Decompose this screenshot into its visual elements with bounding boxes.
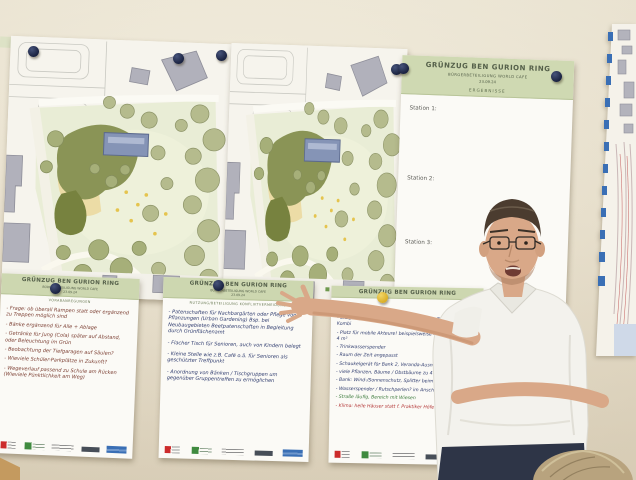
green-ls-icon — [191, 447, 211, 455]
pin-icon — [216, 50, 227, 61]
site-plan-variant-1 — [1, 36, 233, 302]
poster-section-label: ERGEBNISSE — [403, 85, 571, 96]
poster-header: GRÜNZUG BEN GURION RING BÜRGERBETEILIGUN… — [401, 55, 574, 100]
logo-strip — [0, 440, 126, 454]
gray-wordmark-icon — [222, 448, 244, 456]
pin-icon — [398, 63, 409, 74]
gray-wordmark-icon — [51, 443, 73, 451]
station-label-2: Station 2: — [407, 175, 434, 182]
presenter-head — [479, 199, 545, 285]
pin-icon — [50, 283, 61, 294]
green-ls-icon — [24, 442, 44, 450]
red-city-block-icon — [165, 446, 181, 453]
paper1-header: GRÜNZUG BEN GURION RING BÜRGERBETEILIGUN… — [1, 273, 140, 300]
pin-icon — [173, 53, 184, 64]
open-hand — [278, 293, 300, 321]
note-line: Frage: ob überall Rampen statt oder ergä… — [6, 305, 133, 323]
chair-corner — [0, 452, 20, 480]
station-label-1: Station 1: — [409, 105, 436, 112]
presenter — [250, 185, 636, 480]
pin-icon — [28, 46, 39, 57]
note-line: Wegeverlauf passend zu Schule am Rücken … — [3, 365, 130, 383]
paper1-notes: Frage: ob überall Rampen statt oder ergä… — [0, 303, 138, 383]
blue-wave-icon — [106, 446, 126, 454]
pin-icon — [551, 71, 562, 82]
note-line: Getränke für Jung (Cola) später auf Abst… — [5, 331, 132, 349]
site-plan-drawing — [1, 36, 233, 302]
red-city-block-icon — [0, 441, 16, 449]
flipchart-paper-1: GRÜNZUG BEN GURION RING BÜRGERBETEILIGUN… — [0, 273, 140, 459]
pin-icon — [213, 280, 224, 291]
dark-wordmark-icon — [81, 446, 99, 452]
